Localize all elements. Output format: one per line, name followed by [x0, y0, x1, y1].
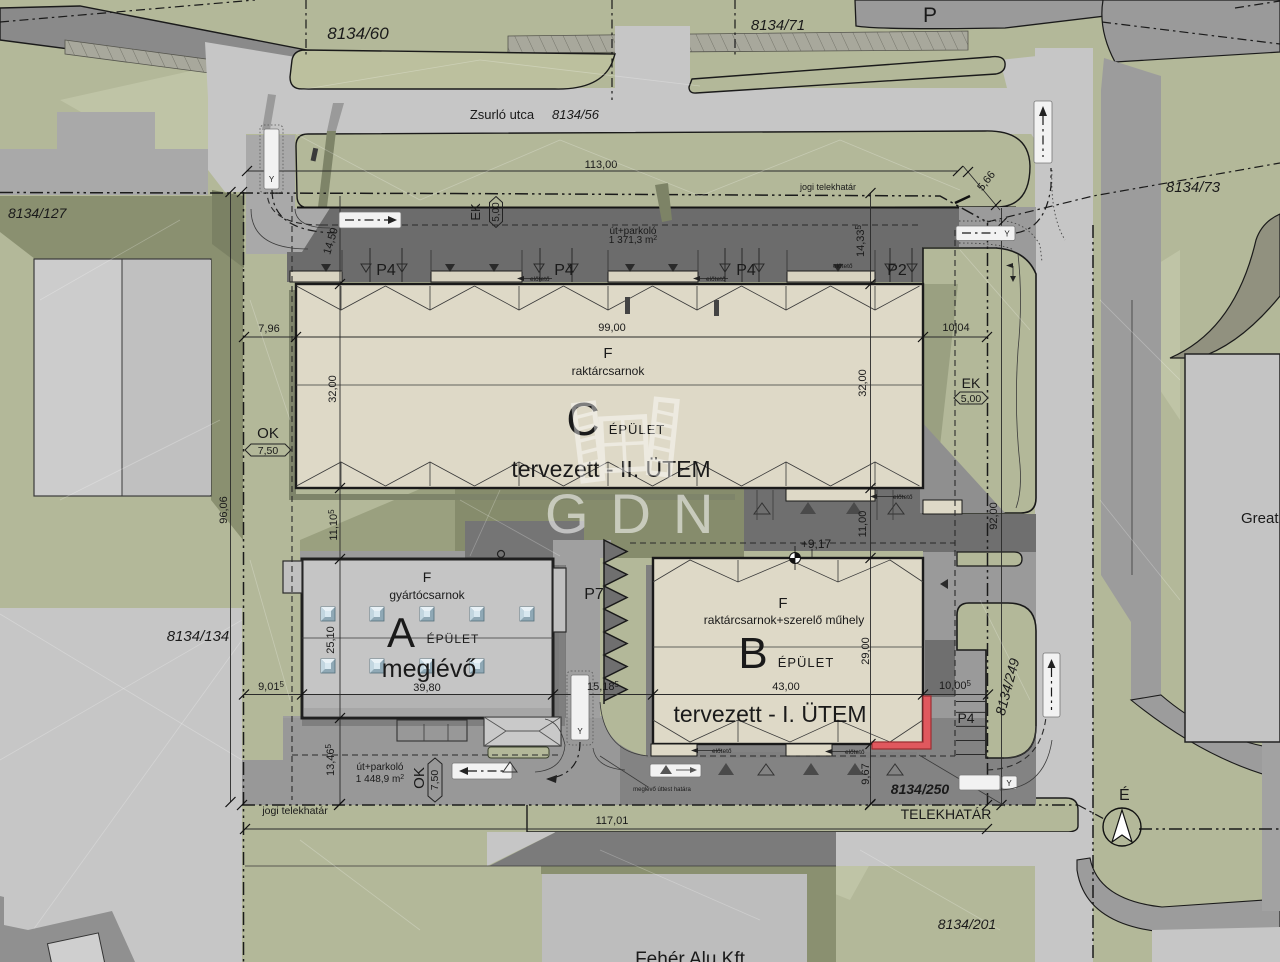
- svg-text:8134/60: 8134/60: [327, 24, 389, 43]
- svg-text:EK: EK: [962, 375, 981, 391]
- svg-text:P2: P2: [887, 262, 907, 279]
- svg-text:10|04: 10|04: [942, 322, 969, 334]
- svg-text:A: A: [387, 609, 415, 656]
- svg-text:Zsurló utca: Zsurló utca: [470, 107, 535, 122]
- svg-text:meglévő: meglévő: [382, 655, 477, 683]
- svg-text:jogi telekhatár: jogi telekhatár: [261, 805, 328, 817]
- svg-text:F: F: [603, 345, 612, 362]
- svg-text:Y: Y: [1004, 230, 1010, 239]
- svg-text:29,00: 29,00: [860, 637, 872, 665]
- svg-text:Y: Y: [1006, 779, 1012, 788]
- svg-text:96,06: 96,06: [218, 496, 230, 524]
- svg-text:32,00: 32,00: [327, 375, 339, 403]
- svg-text:F: F: [778, 595, 787, 612]
- svg-text:előtető: előtető: [845, 749, 865, 756]
- svg-text:P7: P7: [584, 586, 604, 603]
- svg-text:előtető: előtető: [712, 748, 732, 755]
- svg-text:gyártócsarnok: gyártócsarnok: [389, 588, 465, 602]
- svg-text:P4: P4: [376, 262, 396, 279]
- svg-text:117,01: 117,01: [596, 815, 629, 827]
- svg-text:OK: OK: [257, 425, 279, 442]
- svg-text:9,67: 9,67: [860, 763, 872, 784]
- svg-text:8134/127: 8134/127: [8, 205, 68, 221]
- svg-text:TELEKHATÁR: TELEKHATÁR: [901, 806, 992, 822]
- svg-text:meglévő úttest határa: meglévő úttest határa: [633, 787, 691, 793]
- svg-text:OK: OK: [411, 767, 428, 789]
- svg-text:tervezett - I. ÜTEM: tervezett - I. ÜTEM: [674, 701, 867, 727]
- svg-text:11,00: 11,00: [857, 511, 869, 538]
- svg-text:F: F: [423, 569, 432, 585]
- svg-text:P4: P4: [736, 262, 756, 279]
- svg-text:P4: P4: [957, 710, 974, 726]
- svg-text:GDN: GDN: [545, 482, 735, 545]
- svg-text:út+parkoló: út+parkoló: [357, 762, 404, 773]
- svg-text:7,50: 7,50: [258, 445, 279, 457]
- svg-text:Great: Great: [1241, 510, 1279, 527]
- svg-text:8134/134: 8134/134: [167, 628, 230, 645]
- svg-text:7,96: 7,96: [258, 323, 279, 335]
- svg-text:8134/73: 8134/73: [1166, 179, 1221, 196]
- svg-text:5,00: 5,00: [491, 202, 502, 222]
- svg-text:25,10: 25,10: [325, 626, 337, 654]
- svg-text:5,00: 5,00: [961, 393, 982, 405]
- svg-text:99,00: 99,00: [598, 322, 626, 334]
- svg-text:8134/71: 8134/71: [751, 17, 805, 34]
- svg-text:7,50: 7,50: [429, 770, 441, 791]
- svg-text:előtető: előtető: [530, 276, 550, 283]
- svg-text:Y: Y: [577, 727, 583, 736]
- svg-text:előtető: előtető: [706, 276, 726, 283]
- svg-text:ÉPÜLET: ÉPÜLET: [778, 655, 835, 670]
- svg-text:ÉPÜLET: ÉPÜLET: [427, 631, 480, 646]
- svg-text:32,00: 32,00: [857, 369, 869, 397]
- svg-text:Fehér Alu Kft: Fehér Alu Kft: [635, 949, 746, 962]
- svg-text:raktárcsarnok: raktárcsarnok: [572, 364, 646, 378]
- svg-text:43,00: 43,00: [772, 681, 800, 693]
- svg-text:1 371,3 m2: 1 371,3 m2: [609, 235, 657, 246]
- svg-text:jogi telekhatár: jogi telekhatár: [799, 182, 856, 192]
- svg-text:raktárcsarnok+szerelő műhely: raktárcsarnok+szerelő műhely: [704, 613, 864, 627]
- svg-text:+9,17: +9,17: [801, 537, 832, 551]
- svg-text:8134/56: 8134/56: [552, 107, 600, 122]
- svg-text:előtető: előtető: [893, 494, 913, 501]
- svg-text:B: B: [738, 629, 767, 678]
- svg-text:előtető: előtető: [833, 263, 853, 270]
- svg-text:92,00: 92,00: [988, 502, 1000, 530]
- svg-text:Y: Y: [269, 175, 275, 184]
- svg-text:P: P: [923, 4, 937, 27]
- svg-text:39,80: 39,80: [413, 682, 441, 694]
- svg-text:EK: EK: [468, 203, 483, 221]
- svg-text:É: É: [1119, 785, 1130, 804]
- svg-text:P4: P4: [554, 262, 574, 279]
- svg-text:8134/250: 8134/250: [891, 781, 950, 797]
- svg-text:1 448,9 m2: 1 448,9 m2: [356, 774, 404, 785]
- svg-text:8134/201: 8134/201: [938, 916, 996, 932]
